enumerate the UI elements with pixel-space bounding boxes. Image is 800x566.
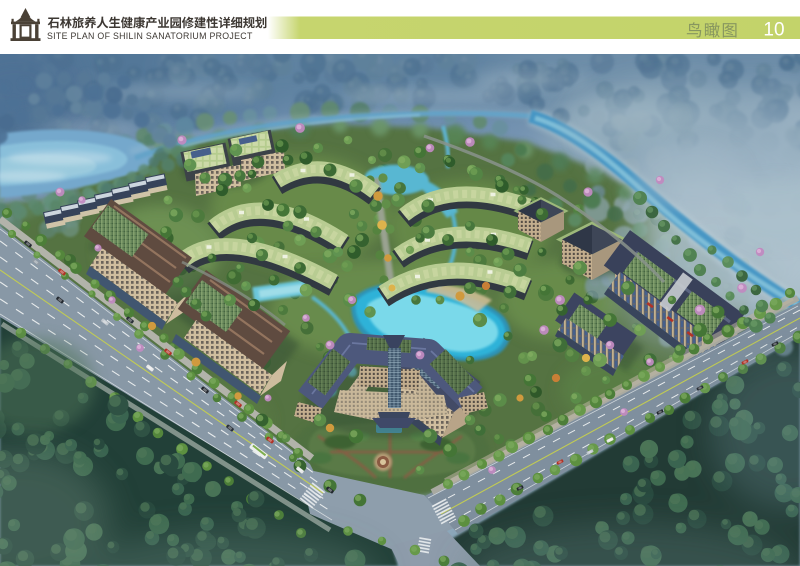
svg-text:SITE PLAN OF SHILIN SANATORIUM: SITE PLAN OF SHILIN SANATORIUM PROJECT xyxy=(47,31,253,41)
svg-text:10: 10 xyxy=(763,20,784,41)
